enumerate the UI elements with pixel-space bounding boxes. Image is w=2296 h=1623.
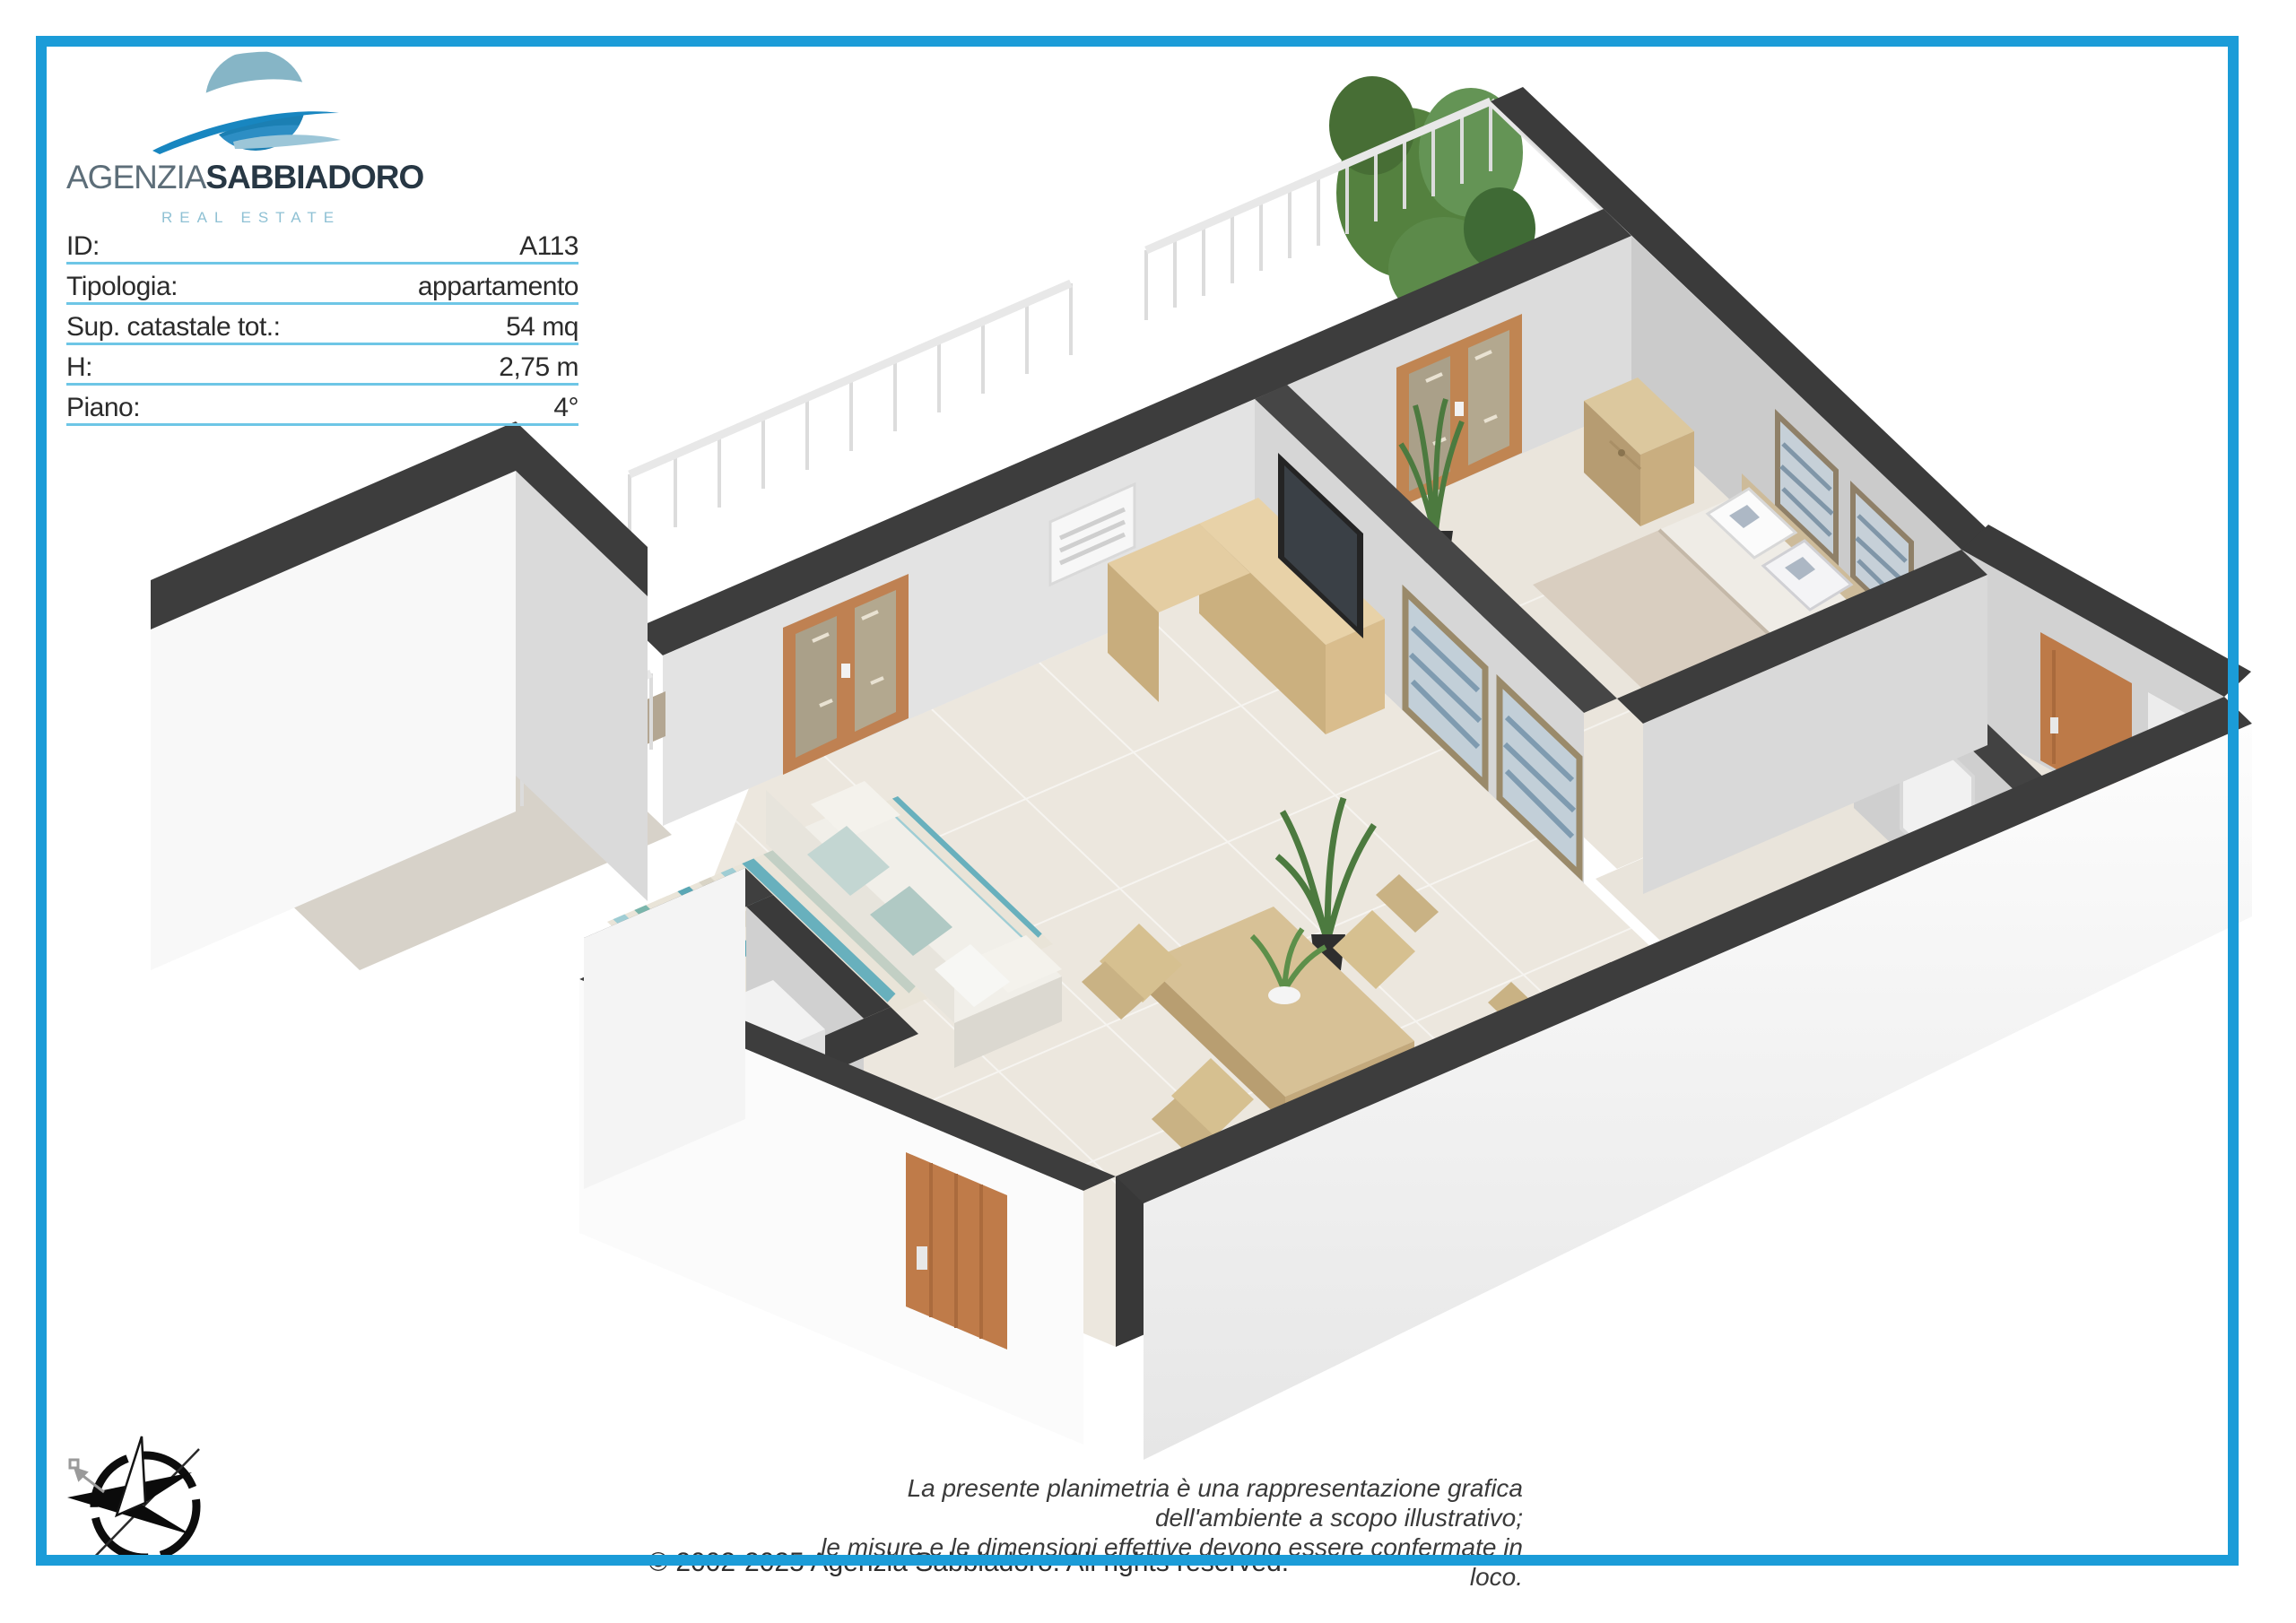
compass-north-icon [63, 1428, 224, 1589]
row-value: appartamento [418, 272, 578, 302]
table-row: ID: A113 [66, 224, 578, 265]
disclaimer-line-1: La presente planimetria è una rappresent… [807, 1473, 1523, 1532]
floorplan-document: AGENZIASABBIADORO REAL ESTATE ID: A113 T… [0, 0, 2296, 1623]
row-label: Piano: [66, 393, 140, 423]
brand-text: AGENZIASABBIADORO [66, 159, 423, 195]
row-value: 2,75 m [499, 352, 578, 383]
row-label: Tipologia: [66, 272, 178, 302]
row-label: ID: [66, 231, 100, 262]
logo-globe-icon [152, 36, 341, 157]
row-value: A113 [519, 231, 578, 262]
row-label: Sup. catastale tot.: [66, 312, 280, 343]
row-value: 4° [553, 393, 578, 423]
agency-logo: AGENZIASABBIADORO REAL ESTATE [54, 27, 520, 233]
table-row: Piano: 4° [66, 386, 578, 426]
property-info-table: ID: A113 Tipologia: appartamento Sup. ca… [66, 224, 578, 426]
row-value: 54 mq [506, 312, 578, 343]
table-row: Sup. catastale tot.: 54 mq [66, 305, 578, 345]
table-row: H: 2,75 m [66, 345, 578, 386]
row-label: H: [66, 352, 92, 383]
table-row: Tipologia: appartamento [66, 265, 578, 305]
copyright-text: © 2002-2025 Agenzia Sabbiadoro. All righ… [574, 1548, 1363, 1578]
compass-minor-arrow [70, 1460, 104, 1492]
